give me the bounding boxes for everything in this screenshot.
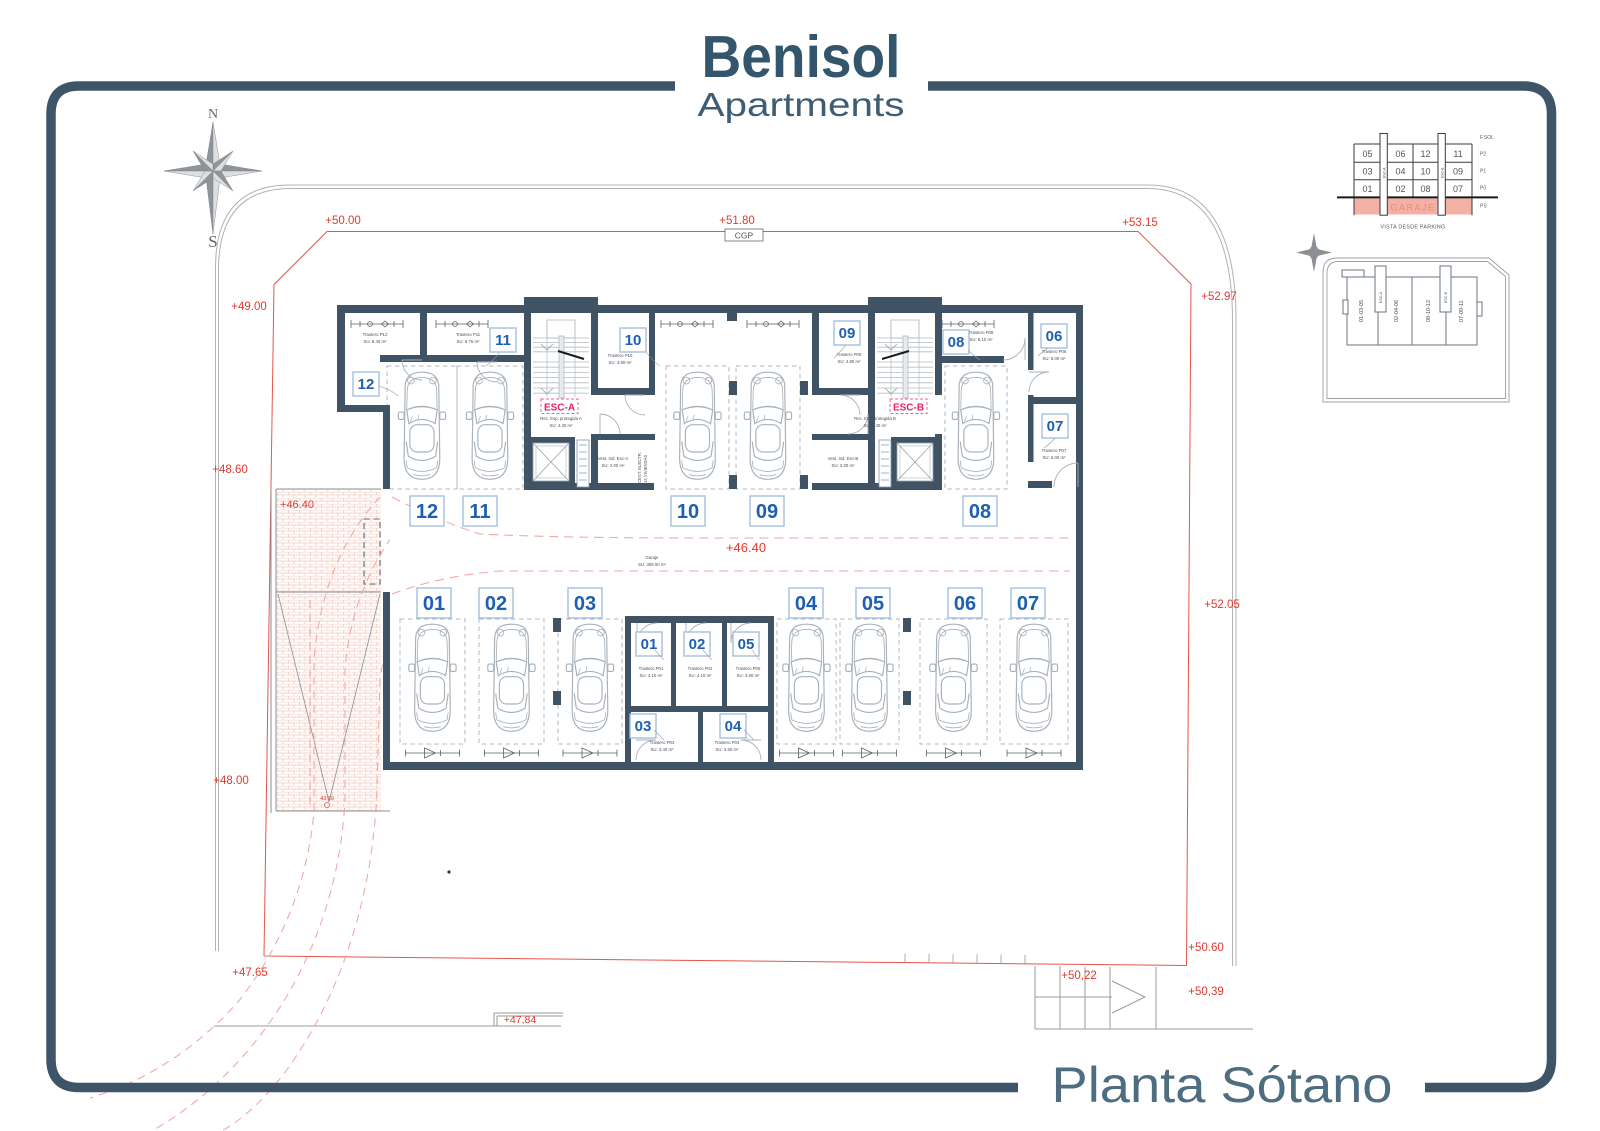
svg-text:Apartments: Apartments [698,86,905,123]
svg-text:04: 04 [795,593,818,615]
svg-text:02: 02 [485,593,507,615]
svg-text:43.60: 43.60 [320,796,334,802]
svg-text:Trastero P01: Trastero P01 [639,666,664,671]
svg-text:SU: 6.75 m²: SU: 6.75 m² [457,339,480,344]
svg-text:GARAJE: GARAJE [1390,203,1435,213]
svg-text:SU: 6.00 m²: SU: 6.00 m² [1043,455,1066,460]
svg-text:SU: 4.40 m²: SU: 4.40 m² [864,423,887,428]
svg-text:12 VIVIENDAS: 12 VIVIENDAS [643,455,648,483]
svg-text:01: 01 [1362,184,1372,194]
svg-text:Planta Sótano: Planta Sótano [1052,1057,1393,1113]
svg-text:N: N [208,107,218,122]
svg-text:SU: 4.10 m²: SU: 4.10 m² [640,673,663,678]
svg-text:SU: 6.00 m²: SU: 6.00 m² [1043,356,1066,361]
svg-text:SU: 2.00 m²: SU: 2.00 m² [602,463,625,468]
svg-text:10: 10 [625,332,642,349]
svg-text:P2: P2 [1480,152,1486,158]
svg-text:08: 08 [1420,184,1430,194]
svg-text:11: 11 [495,332,511,349]
svg-text:07-09-11: 07-09-11 [1459,300,1465,322]
svg-text:+52.05: +52.05 [1204,599,1240,611]
svg-text:09: 09 [839,325,856,342]
svg-text:Trastero P09: Trastero P09 [837,352,862,357]
svg-text:SU: 3.60 m²: SU: 3.60 m² [716,747,739,752]
svg-text:+49.00: +49.00 [231,301,267,313]
svg-text:Trastero P03: Trastero P03 [650,740,675,745]
svg-text:ESC-A: ESC-A [1383,167,1387,178]
svg-text:12: 12 [1420,149,1430,159]
svg-text:06: 06 [1046,328,1063,345]
svg-text:06: 06 [954,593,976,615]
svg-text:09: 09 [1453,167,1463,177]
svg-text:F.SOL: F.SOL [1480,135,1494,141]
svg-text:Vest. Ind. Esc-B: Vest. Ind. Esc-B [828,456,859,461]
svg-text:Trastero P10: Trastero P10 [608,353,633,358]
svg-text:12: 12 [416,501,438,523]
svg-text:12: 12 [358,376,375,393]
svg-text:01: 01 [641,636,658,653]
svg-text:08: 08 [948,334,965,351]
svg-text:03: 03 [1362,167,1372,177]
svg-text:+46.40: +46.40 [726,540,766,555]
svg-text:Trastero P11: Trastero P11 [456,332,481,337]
svg-text:SU: 3.80 m²: SU: 3.80 m² [737,673,760,678]
svg-text:02: 02 [689,636,706,653]
svg-text:+48.00: +48.00 [213,775,249,787]
svg-text:03: 03 [574,593,596,615]
svg-text:02: 02 [1395,184,1405,194]
svg-text:10: 10 [677,501,699,523]
svg-text:+50,22: +50,22 [1061,970,1097,982]
svg-text:SU: 4.40 m²: SU: 4.40 m² [550,423,573,428]
svg-text:SU: 6.10 m²: SU: 6.10 m² [970,337,993,342]
svg-text:Rec. Esp. protegida B: Rec. Esp. protegida B [854,416,896,421]
svg-text:09: 09 [756,501,778,523]
svg-text:SU: 4.80 m²: SU: 4.80 m² [838,359,861,364]
svg-text:PS: PS [1480,204,1487,210]
svg-text:SU: 3.40 m²: SU: 3.40 m² [651,747,674,752]
svg-text:Trastero P07: Trastero P07 [1042,448,1067,453]
svg-text:08-10-12: 08-10-12 [1426,300,1432,322]
svg-text:03: 03 [635,718,652,735]
svg-text:Trastero P02: Trastero P02 [688,666,713,671]
svg-text:+47.65: +47.65 [232,967,268,979]
svg-text:05: 05 [1362,149,1372,159]
svg-text:CENT. ELECTR.: CENT. ELECTR. [637,452,642,483]
svg-text:Garaje: Garaje [646,555,660,560]
svg-text:+46.40: +46.40 [280,499,314,511]
svg-text:SU: 4.10 m²: SU: 4.10 m² [689,673,712,678]
svg-text:11: 11 [1453,149,1462,159]
svg-text:SU: 8.40 m²: SU: 8.40 m² [364,339,387,344]
svg-text:+50,39: +50,39 [1188,986,1224,998]
svg-text:04: 04 [725,718,742,735]
svg-text:P1: P1 [1480,169,1486,175]
svg-text:04: 04 [1395,167,1405,177]
svg-text:S: S [208,232,217,251]
svg-text:01: 01 [423,593,445,615]
svg-text:10: 10 [1420,167,1430,177]
svg-text:05: 05 [862,593,884,615]
svg-text:Trastero P04: Trastero P04 [715,740,740,745]
svg-text:Vest. Ind. Esc-A: Vest. Ind. Esc-A [598,456,629,461]
svg-text:05: 05 [738,636,755,653]
svg-text:CGP: CGP [735,231,754,241]
svg-text:CONDUCTOS INST.: CONDUCTOS INST. [871,445,876,483]
svg-text:SU: 4.80 m²: SU: 4.80 m² [609,360,632,365]
svg-text:VISTA DESDE PARKING: VISTA DESDE PARKING [1381,225,1446,231]
svg-text:07: 07 [1453,184,1463,194]
svg-text:+50.60: +50.60 [1188,942,1224,954]
svg-text:ESC-B: ESC-B [1444,291,1448,303]
svg-text:ESC-B: ESC-B [893,403,924,414]
svg-text:Trastero P12: Trastero P12 [363,332,388,337]
svg-text:Rec. Esp. protegida A: Rec. Esp. protegida A [540,416,582,421]
svg-text:Trastero P05: Trastero P05 [736,666,761,671]
svg-text:+51.80: +51.80 [719,215,755,227]
svg-text:+52.97: +52.97 [1201,291,1237,303]
svg-text:Benisol: Benisol [702,24,901,90]
svg-text:SU: 2.00 m²: SU: 2.00 m² [832,463,855,468]
svg-text:01-03-05: 01-03-05 [1359,300,1365,322]
svg-text:+53.15: +53.15 [1122,217,1158,229]
svg-text:02-04-06: 02-04-06 [1394,300,1400,322]
svg-text:07: 07 [1017,593,1039,615]
svg-text:+48.60: +48.60 [212,464,248,476]
svg-text:06: 06 [1395,149,1405,159]
svg-text:11: 11 [469,501,490,523]
svg-text:ESC-B: ESC-B [1441,167,1445,178]
svg-text:+50.00: +50.00 [325,215,361,227]
svg-text:SU: 308.00 m²: SU: 308.00 m² [638,562,666,567]
svg-text:ESC-A: ESC-A [544,403,575,414]
svg-text:08: 08 [969,501,991,523]
svg-text:ESC-A: ESC-A [1379,291,1383,303]
svg-text:07: 07 [1047,418,1064,435]
svg-text:+47,84: +47,84 [504,1014,537,1026]
svg-text:Trastero P08: Trastero P08 [969,330,994,335]
svg-text:P0: P0 [1480,186,1486,192]
